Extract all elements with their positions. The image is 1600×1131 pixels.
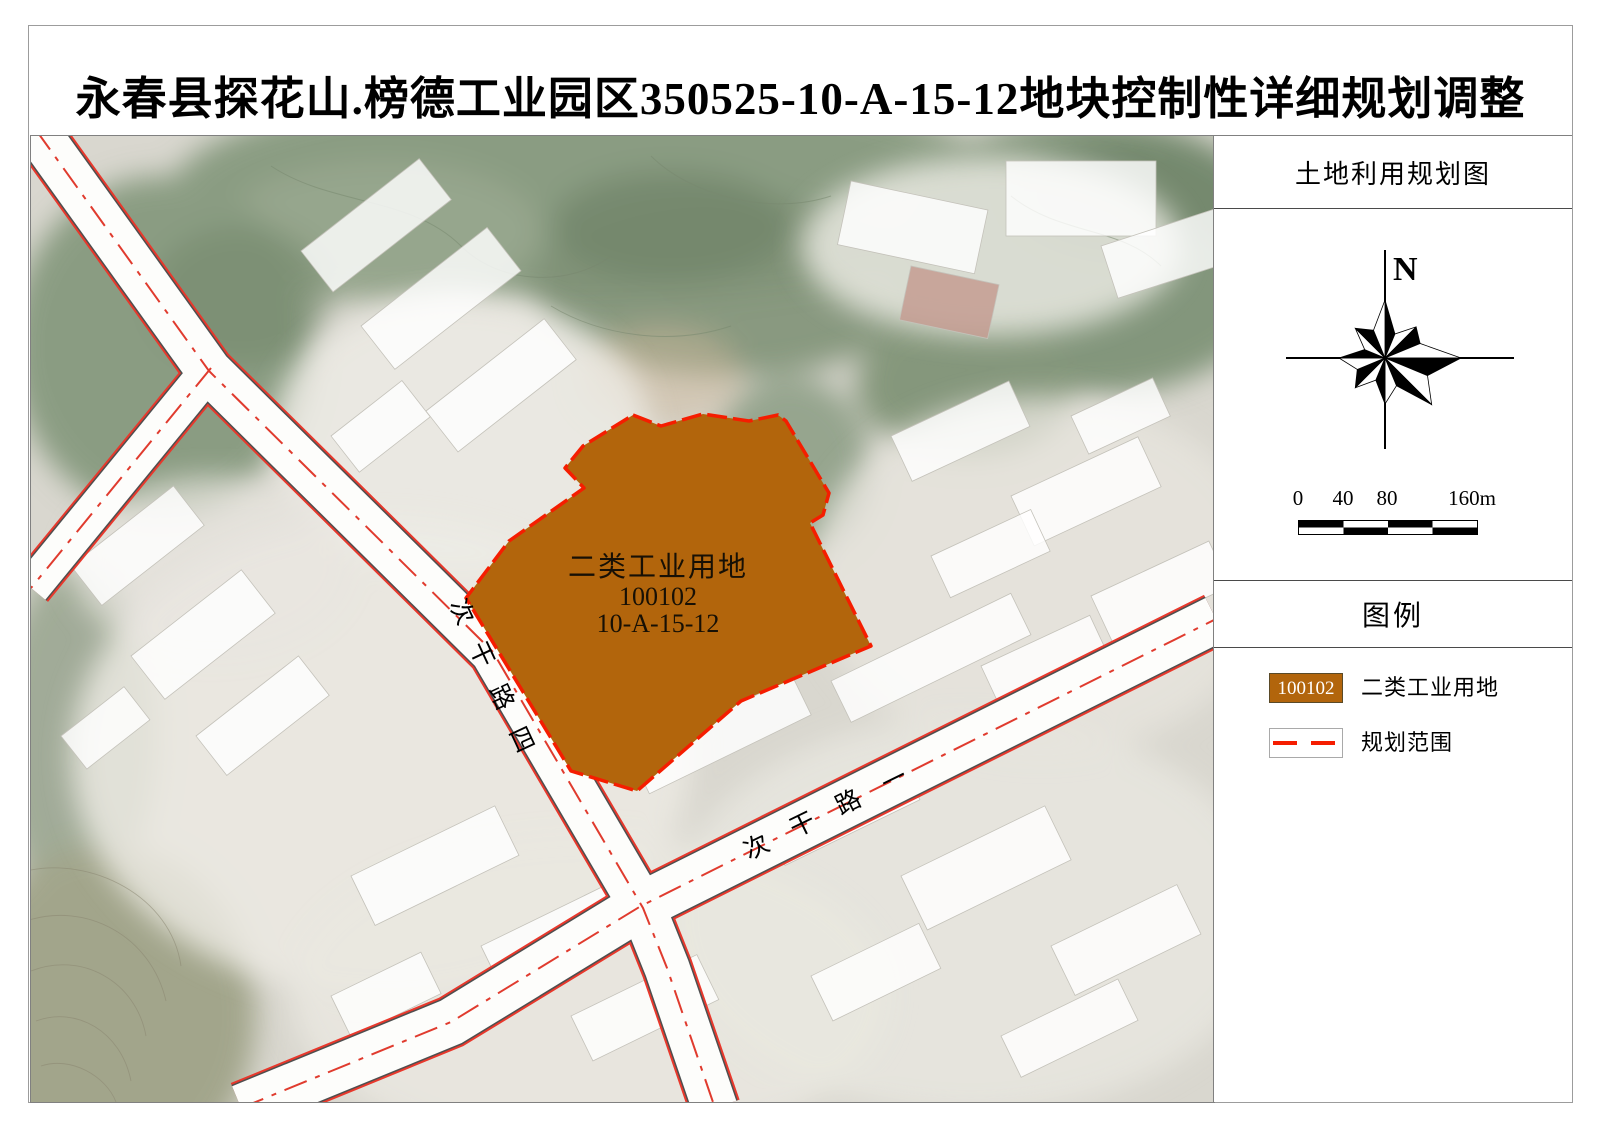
sidebar-divider-2 — [1214, 580, 1572, 581]
scalebar-label-160: 160m — [1448, 486, 1496, 511]
sidebar-divider-3 — [1214, 647, 1572, 648]
scalebar-labels: 0 40 80 160m — [1214, 486, 1572, 510]
parcel-label-name: 二类工业用地 — [568, 551, 748, 583]
compass-rose: N — [1272, 244, 1522, 459]
legend-label-boundary: 规划范围 — [1361, 728, 1453, 758]
legend-item-industrial: 100102 二类工业用地 — [1214, 673, 1572, 703]
scalebar-label-0: 0 — [1293, 486, 1304, 511]
wind-rose-petals — [1339, 300, 1461, 405]
sheet-frame: 永春县探花山.榜德工业园区350525-10-A-15-12地块控制性详细规划调… — [28, 25, 1573, 1103]
legend-title: 图例 — [1214, 594, 1572, 634]
sidebar-divider-1 — [1214, 208, 1572, 209]
plan-sheet: 永春县探花山.榜德工业园区350525-10-A-15-12地块控制性详细规划调… — [0, 0, 1600, 1131]
parcel-label-plot-no: 10-A-15-12 — [597, 609, 720, 638]
scalebar-label-80: 80 — [1377, 486, 1398, 511]
page-title: 永春县探花山.榜德工业园区350525-10-A-15-12地块控制性详细规划调… — [29, 62, 1572, 127]
map-sidebar: 土地利用规划图 N 0 40 80 160m — [1213, 135, 1572, 1102]
north-label: N — [1393, 251, 1418, 288]
legend-swatch-code: 100102 — [1278, 678, 1335, 699]
scale-bar — [1298, 520, 1478, 536]
satellite-map-canvas: 二类工业用地 100102 10-A-15-12 次干路四 次干路一 — [31, 136, 1214, 1102]
parcel-label-code: 100102 — [619, 582, 697, 611]
sidebar-map-title: 土地利用规划图 — [1214, 154, 1572, 191]
legend-swatch-boundary — [1269, 728, 1343, 758]
scalebar-label-40: 40 — [1333, 486, 1354, 511]
legend-item-boundary: 规划范围 — [1214, 728, 1572, 758]
land-use-map: 二类工业用地 100102 10-A-15-12 次干路四 次干路一 — [30, 135, 1215, 1103]
legend-label-industrial: 二类工业用地 — [1361, 673, 1499, 703]
legend-swatch-industrial: 100102 — [1269, 673, 1343, 703]
